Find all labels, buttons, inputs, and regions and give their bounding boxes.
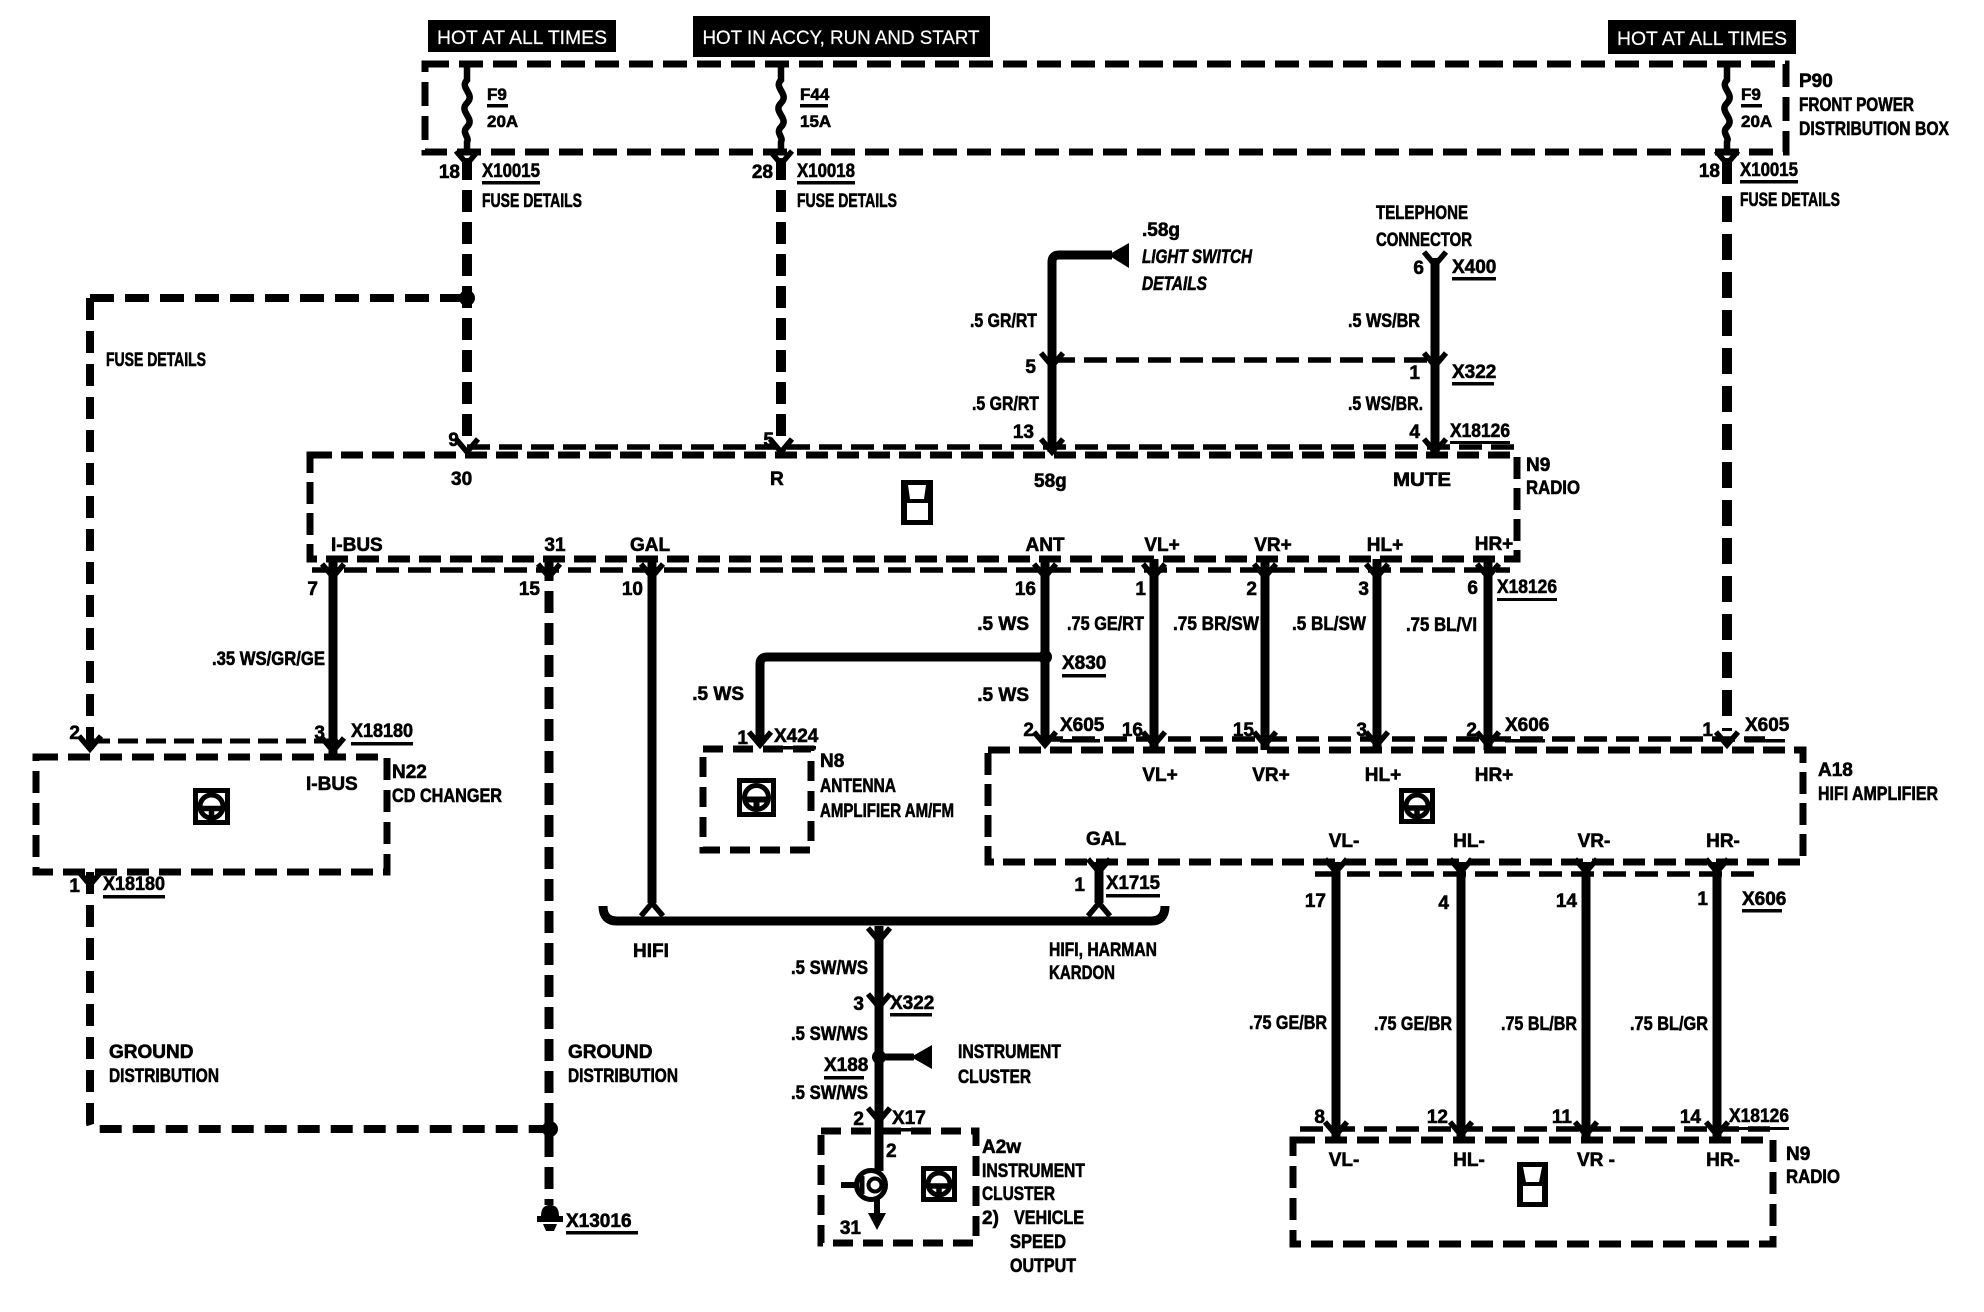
svg-text:15A: 15A [800,112,831,131]
svg-text:.75 GE/BR: .75 GE/BR [1249,1013,1327,1034]
svg-text:2: 2 [1023,720,1034,741]
svg-text:INSTRUMENT: INSTRUMENT [982,1161,1085,1182]
svg-text:3: 3 [853,994,864,1015]
svg-text:6: 6 [1413,258,1424,279]
svg-text:CONNECTOR: CONNECTOR [1376,230,1472,251]
svg-text:14: 14 [1556,891,1578,912]
svg-text:20A: 20A [487,112,518,131]
svg-text:X605: X605 [1745,715,1790,736]
svg-text:58g: 58g [1034,471,1067,492]
svg-text:X1715: X1715 [1106,873,1160,894]
svg-text:F9: F9 [487,85,507,104]
svg-text:6: 6 [1467,578,1478,599]
svg-text:X606: X606 [1505,715,1549,736]
svg-text:HL+: HL+ [1365,765,1401,786]
svg-text:1: 1 [1697,889,1708,910]
svg-text:X18126: X18126 [1497,577,1557,598]
svg-text:HOT AT ALL TIMES: HOT AT ALL TIMES [437,27,607,49]
svg-text:.75 BL/VI: .75 BL/VI [1406,615,1477,636]
svg-text:18: 18 [439,162,460,183]
svg-text:1: 1 [69,876,80,897]
svg-text:16: 16 [1122,720,1143,741]
svg-text:.75 BL/BR: .75 BL/BR [1501,1014,1577,1035]
svg-text:FUSE DETAILS: FUSE DETAILS [482,191,582,212]
svg-text:X10015: X10015 [482,161,540,182]
svg-text:.75 GE/RT: .75 GE/RT [1067,614,1144,635]
svg-text:X400: X400 [1452,257,1496,278]
svg-text:HOT AT ALL TIMES: HOT AT ALL TIMES [1617,28,1787,50]
svg-text:X830: X830 [1062,653,1106,674]
svg-text:CD CHANGER: CD CHANGER [392,786,502,807]
svg-text:FUSE DETAILS: FUSE DETAILS [797,191,897,212]
svg-text:HOT IN ACCY, RUN AND START: HOT IN ACCY, RUN AND START [703,27,980,49]
svg-text:HR-: HR- [1706,831,1740,852]
svg-text:F44: F44 [800,85,830,104]
svg-text:X18126: X18126 [1729,1106,1789,1127]
svg-text:F9: F9 [1741,85,1761,104]
svg-text:.5 SW/WS: .5 SW/WS [791,1083,868,1104]
svg-text:X18180: X18180 [103,874,165,895]
svg-text:RADIO: RADIO [1786,1167,1840,1188]
svg-text:CLUSTER: CLUSTER [958,1067,1031,1088]
svg-text:30: 30 [451,469,472,490]
svg-text:OUTPUT: OUTPUT [1010,1256,1076,1277]
svg-text:X424: X424 [774,726,819,747]
svg-text:.35 WS/GR/GE: .35 WS/GR/GE [212,649,325,670]
svg-text:.58g: .58g [1142,220,1180,241]
svg-text:.5 SW/WS: .5 SW/WS [791,1024,868,1045]
svg-text:28: 28 [752,162,773,183]
svg-text:.5 WS: .5 WS [977,685,1029,706]
svg-text:ANT: ANT [1025,535,1064,556]
svg-text:DISTRIBUTION: DISTRIBUTION [568,1066,678,1087]
svg-text:HIFI, HARMAN: HIFI, HARMAN [1049,940,1157,961]
svg-text:.5 GR/RT: .5 GR/RT [972,394,1039,415]
svg-text:17: 17 [1305,891,1326,912]
svg-text:VL+: VL+ [1142,765,1177,786]
svg-text:X10015: X10015 [1740,160,1798,181]
svg-text:VR-: VR- [1578,831,1611,852]
svg-text:12: 12 [1427,1107,1448,1128]
svg-text:X18180: X18180 [351,721,413,742]
svg-text:.5 BL/SW: .5 BL/SW [1292,614,1366,635]
svg-text:N8: N8 [820,751,844,772]
svg-text:18: 18 [1699,161,1720,182]
svg-text:VR+: VR+ [1254,535,1292,556]
svg-text:11: 11 [1552,1107,1573,1128]
svg-text:MUTE: MUTE [1393,470,1451,491]
svg-text:HR+: HR+ [1475,765,1514,786]
svg-text:INSTRUMENT: INSTRUMENT [958,1042,1061,1063]
svg-text:VR -: VR - [1577,1150,1615,1171]
svg-text:A18: A18 [1818,760,1853,781]
svg-text:15: 15 [1233,720,1255,741]
svg-text:3: 3 [1358,579,1369,600]
svg-text:FUSE DETAILS: FUSE DETAILS [1740,190,1840,211]
svg-text:LIGHT SWITCH: LIGHT SWITCH [1142,247,1253,268]
svg-text:R: R [770,469,784,490]
svg-text:X322: X322 [1452,362,1496,383]
svg-text:.75 BR/SW: .75 BR/SW [1173,614,1259,635]
svg-text:A2w: A2w [982,1137,1021,1158]
svg-text:10: 10 [622,579,643,600]
svg-text:HL+: HL+ [1367,535,1403,556]
svg-text:I-BUS: I-BUS [331,535,383,556]
svg-text:X13016: X13016 [566,1211,632,1232]
svg-text:HL-: HL- [1453,1150,1485,1171]
svg-text:3: 3 [1356,720,1367,741]
svg-text:X322: X322 [890,993,934,1014]
svg-text:GROUND: GROUND [568,1042,652,1063]
svg-text:13: 13 [1013,422,1034,443]
svg-text:X18126: X18126 [1450,421,1510,442]
svg-text:.5 GR/RT: .5 GR/RT [970,311,1037,332]
svg-text:GAL: GAL [1086,829,1127,850]
svg-text:.5 WS: .5 WS [692,684,744,705]
svg-text:KARDON: KARDON [1049,963,1115,984]
svg-text:CLUSTER: CLUSTER [982,1184,1055,1205]
svg-text:8: 8 [1314,1107,1325,1128]
svg-text:2: 2 [1466,720,1477,741]
svg-text:X605: X605 [1060,715,1105,736]
svg-text:5: 5 [1025,357,1036,378]
svg-text:FUSE DETAILS: FUSE DETAILS [106,350,206,371]
svg-text:4: 4 [1438,893,1449,914]
svg-text:1: 1 [1074,875,1085,896]
svg-text:GROUND: GROUND [109,1042,193,1063]
svg-text:VEHICLE: VEHICLE [1014,1208,1084,1229]
svg-text:1: 1 [1135,579,1146,600]
svg-text:X10018: X10018 [797,161,855,182]
svg-text:1: 1 [1702,720,1713,741]
svg-text:31: 31 [544,535,566,556]
svg-text:HIFI: HIFI [633,941,669,962]
svg-text:2: 2 [1246,579,1257,600]
svg-text:2): 2) [982,1208,999,1229]
svg-text:2: 2 [853,1109,864,1130]
svg-text:N9: N9 [1786,1144,1810,1165]
svg-text:7: 7 [307,579,318,600]
svg-text:.75 BL/GR: .75 BL/GR [1630,1014,1708,1035]
svg-text:TELEPHONE: TELEPHONE [1376,203,1468,224]
svg-text:VL-: VL- [1329,1150,1360,1171]
svg-text:HIFI AMPLIFIER: HIFI AMPLIFIER [1818,784,1938,805]
svg-text:.5 SW/WS: .5 SW/WS [791,958,868,979]
svg-text:HL-: HL- [1453,831,1485,852]
svg-text:.5 WS: .5 WS [977,614,1029,635]
svg-text:VL-: VL- [1329,831,1360,852]
svg-text:VR+: VR+ [1252,765,1290,786]
svg-text:HR-: HR- [1706,1150,1740,1171]
svg-text:X606: X606 [1742,889,1786,910]
svg-text:15: 15 [519,579,541,600]
svg-text:.5 WS/BR: .5 WS/BR [1348,311,1420,332]
svg-text:DISTRIBUTION BOX: DISTRIBUTION BOX [1799,119,1949,140]
svg-text:FRONT POWER: FRONT POWER [1799,95,1914,116]
svg-text:DETAILS: DETAILS [1142,274,1207,295]
svg-text:1: 1 [1409,363,1420,384]
svg-text:RADIO: RADIO [1526,478,1580,499]
svg-text:X188: X188 [824,1055,868,1076]
svg-text:GAL: GAL [630,535,671,556]
svg-text:DISTRIBUTION: DISTRIBUTION [109,1066,219,1087]
svg-text:VL+: VL+ [1144,535,1179,556]
svg-text:16: 16 [1015,579,1036,600]
svg-text:X17: X17 [892,1108,926,1129]
svg-text:N22: N22 [392,762,427,783]
svg-text:.75 GE/BR: .75 GE/BR [1374,1014,1452,1035]
svg-text:2: 2 [886,1141,897,1162]
svg-text:AMPLIFIER AM/FM: AMPLIFIER AM/FM [820,801,954,822]
svg-text:2: 2 [69,723,80,744]
svg-text:I-BUS: I-BUS [306,774,358,795]
svg-text:14: 14 [1680,1107,1702,1128]
svg-text:HR+: HR+ [1475,534,1514,555]
svg-text:4: 4 [1409,422,1420,443]
svg-text:P90: P90 [1799,71,1833,92]
svg-text:SPEED: SPEED [1010,1232,1066,1253]
svg-text:N9: N9 [1526,455,1550,476]
svg-text:20A: 20A [1741,112,1772,131]
svg-text:31: 31 [840,1218,862,1239]
svg-text:.5 WS/BR.: .5 WS/BR. [1348,394,1423,415]
svg-text:ANTENNA: ANTENNA [820,776,896,797]
